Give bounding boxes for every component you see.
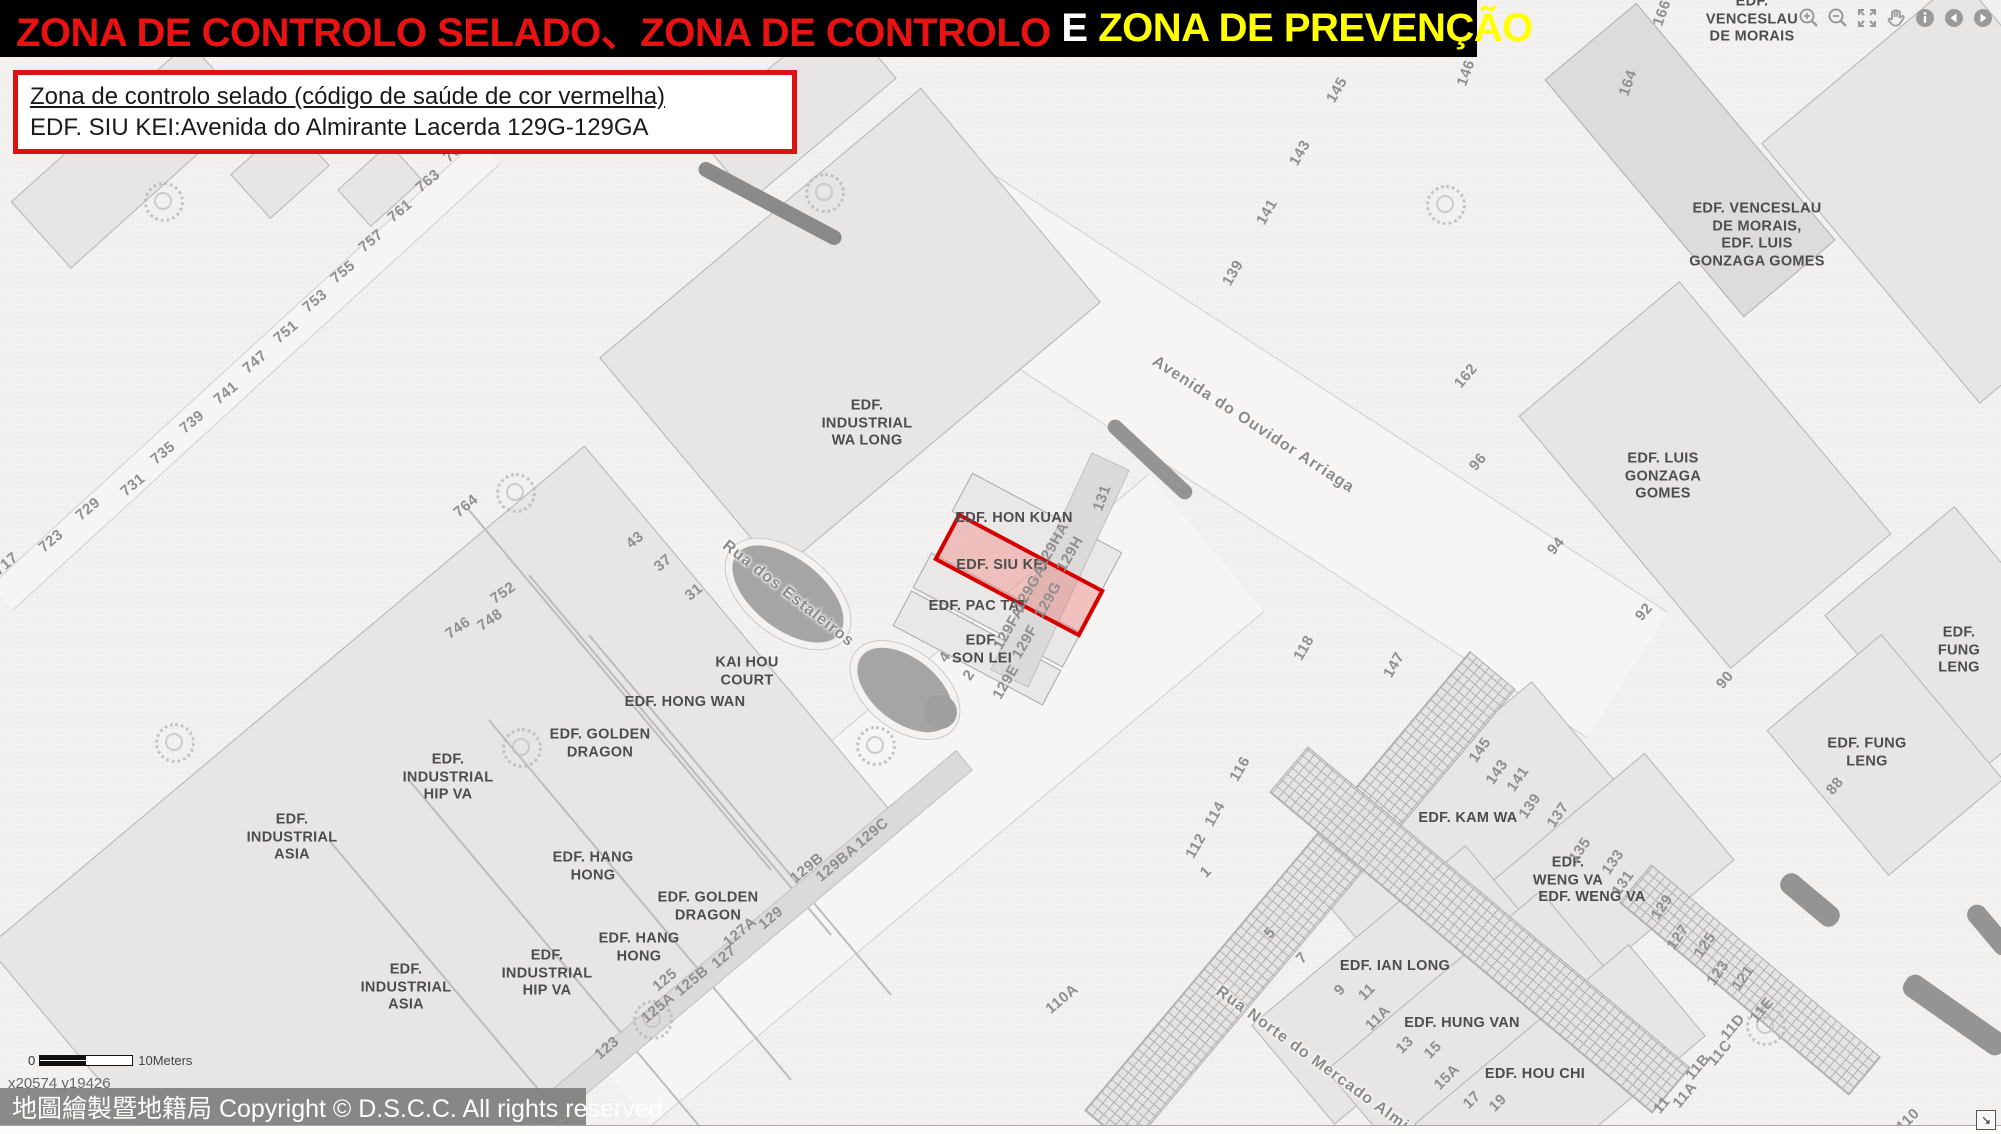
house-number-label: 147 [1380, 649, 1408, 680]
scale-bar-graphic [39, 1055, 133, 1066]
house-number-label: 96 [1466, 450, 1490, 474]
title-segment-connector: E [1051, 6, 1098, 51]
title-segment-yellow: ZONA DE PREVENÇÃO [1098, 6, 1533, 51]
next-view-icon[interactable] [1971, 6, 1995, 30]
house-number-label: 110A [1042, 981, 1081, 1018]
zoom-in-icon[interactable] [1797, 6, 1821, 30]
house-number-label: 11D [1717, 1011, 1748, 1044]
building-label: EDF. VENCESLAU DE MORAIS [1706, 0, 1798, 47]
map-canvas[interactable]: EDF. INDUSTRIAL WA LONGEDF. HON KUANEDF.… [0, 0, 2001, 1134]
zone-info-box: Zona de controlo selado (código de saúde… [13, 70, 797, 154]
survey-mark-icon [856, 726, 896, 766]
scale-distance-label: 10Meters [138, 1053, 192, 1068]
copyright-text: 地圖繪製暨地籍局 Copyright © D.S.C.C. All rights… [0, 1089, 663, 1125]
house-number-label: 1 [1197, 863, 1215, 881]
house-number-label: 162 [1451, 360, 1481, 391]
map-toolbar [1797, 6, 1995, 30]
zone-info-heading: Zona de controlo selado (código de saúde… [30, 81, 780, 112]
scale-bar: 0 10Meters [28, 1053, 192, 1068]
house-number-label: 116 [1226, 754, 1254, 785]
house-number-label: 146 [1453, 58, 1478, 89]
survey-mark-icon [496, 473, 536, 513]
house-number-label: 11C [1704, 1037, 1735, 1070]
survey-mark-icon [502, 728, 542, 768]
traffic-island [923, 695, 957, 729]
pan-icon[interactable] [1884, 6, 1908, 30]
survey-mark-icon [1426, 185, 1466, 225]
house-number-label: 90 [1713, 668, 1737, 692]
scale-zero-label: 0 [28, 1053, 35, 1068]
zoom-out-icon[interactable] [1826, 6, 1850, 30]
survey-mark-icon [805, 173, 845, 213]
identify-icon[interactable] [1913, 6, 1937, 30]
house-number-label: 145 [1323, 74, 1351, 105]
road-median-bar [1963, 901, 2001, 960]
survey-mark-icon [633, 1000, 673, 1040]
title-bar: ZONA DE CONTROLO SELADO、ZONA DE CONTROLO… [0, 0, 1477, 57]
house-number-label: 141 [1253, 196, 1281, 227]
previous-view-icon[interactable] [1942, 6, 1966, 30]
zone-info-address: EDF. SIU KEI:Avenida do Almirante Lacerd… [30, 112, 780, 143]
house-number-label: 114 [1201, 799, 1229, 830]
map-block-wa-long [599, 88, 1101, 572]
survey-mark-icon [155, 723, 195, 763]
resize-corner-icon[interactable]: ↘ [1976, 1110, 1996, 1130]
road-median-bar [1776, 869, 1844, 931]
house-number-label: 112 [1182, 831, 1210, 862]
title-segment-red: ZONA DE CONTROLO SELADO、ZONA DE CONTROLO [16, 0, 1051, 58]
road-median-bar [1899, 971, 2001, 1059]
house-number-label: 118 [1290, 633, 1318, 664]
copyright-bar: 地圖繪製暨地籍局 Copyright © D.S.C.C. All rights… [0, 1088, 586, 1125]
house-number-label: 139 [1219, 257, 1247, 288]
survey-mark-icon [144, 182, 184, 222]
bottom-strip [0, 1125, 2001, 1134]
survey-mark-icon [1746, 1006, 1786, 1046]
full-extent-icon[interactable] [1855, 6, 1879, 30]
house-number-label: 143 [1286, 137, 1314, 168]
house-number-label: 764 [450, 491, 481, 521]
